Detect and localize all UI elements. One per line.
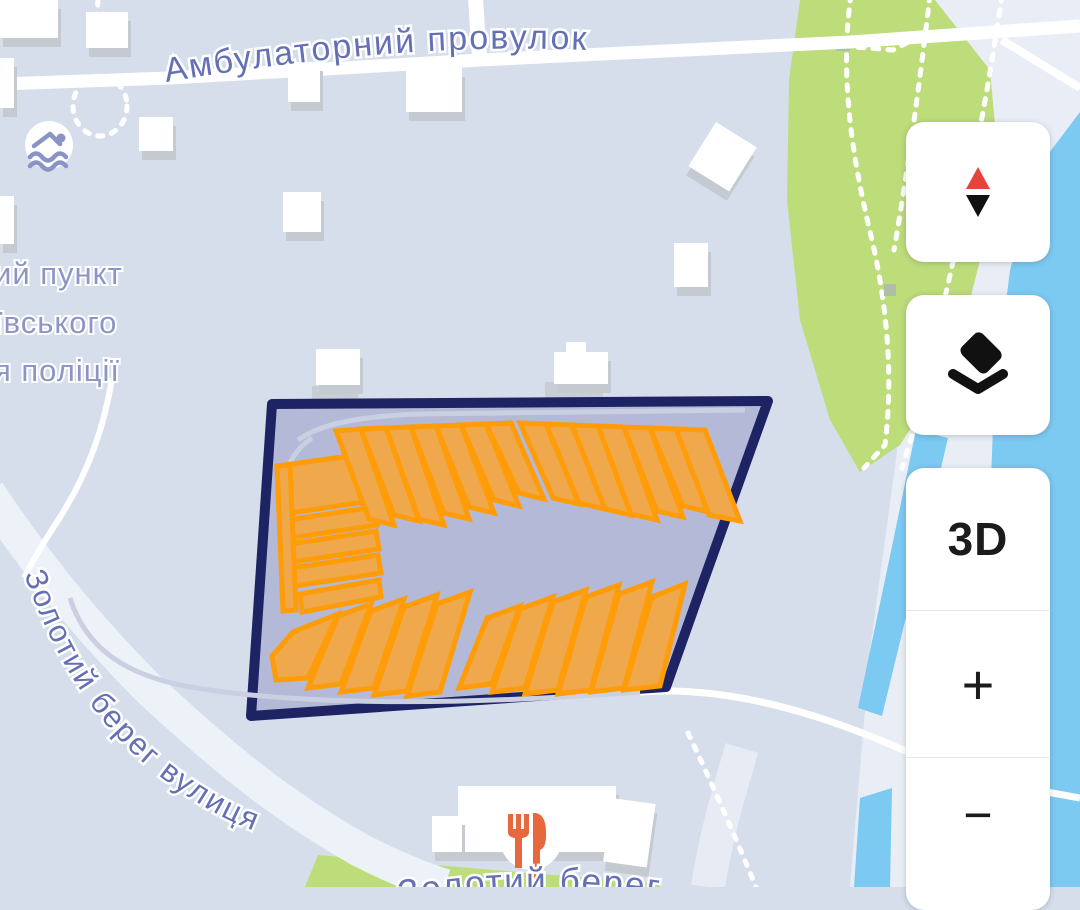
svg-text:ий пункт: ий пункт	[0, 256, 123, 291]
map-app: { "labels": { "street_top": "Амбулаторни…	[0, 0, 1080, 887]
three-d-button[interactable]: 3D	[906, 468, 1050, 610]
zoom-out-button[interactable]: −	[906, 758, 1050, 910]
svg-text:я поліції: я поліції	[0, 353, 120, 388]
trail-junction	[884, 284, 896, 296]
zoom-panel: 3D + −	[906, 468, 1050, 910]
layers-button[interactable]	[906, 295, 1050, 435]
poi-police-label: ий пункт ївського я поліції	[0, 256, 123, 388]
layers-icon	[946, 332, 1010, 398]
compass-button[interactable]	[906, 122, 1050, 262]
zoom-in-button[interactable]: +	[906, 611, 1050, 757]
compass-needle-icon	[954, 164, 1002, 220]
svg-text:ївського: ївського	[0, 305, 117, 340]
